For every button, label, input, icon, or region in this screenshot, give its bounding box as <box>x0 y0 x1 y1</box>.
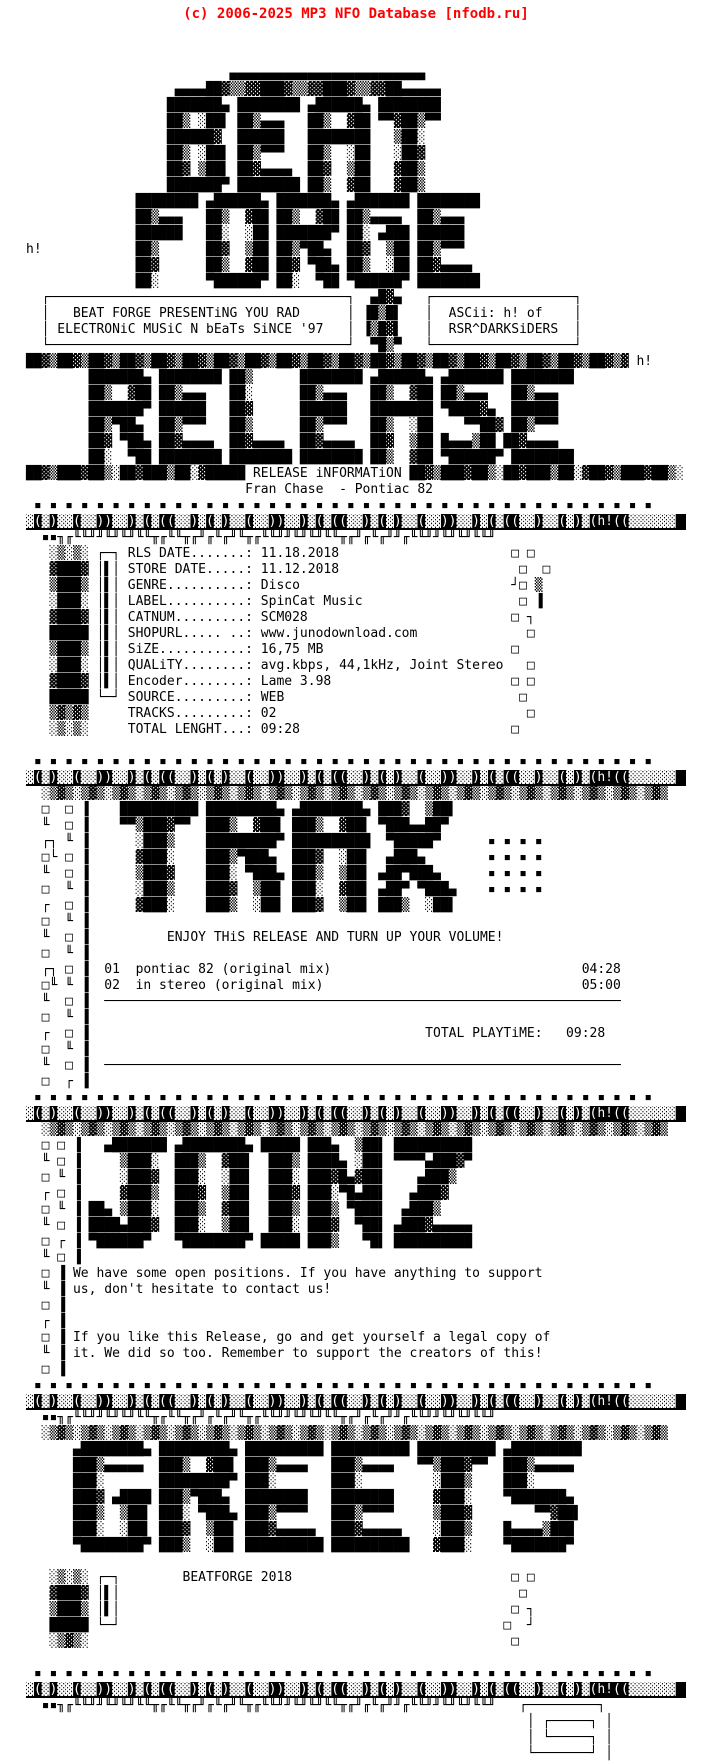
nfo-line: ███████▀ ██████ ██▓ ██████ ████████ ▀███… <box>26 402 686 418</box>
nfo-line: ███████▀ ████████ ██▒ ▓██ ▓██▒ <box>26 178 686 194</box>
nfo-line: └───────┘ │ <box>26 1746 686 1762</box>
nfo-line: □ ╙ ▐ <box>26 914 686 930</box>
nfo-line: ▪▪╖╓╙╙╜╜╙╜╙╜╙╙╥╓╙╙╥╓╜╓╙╓╜╙╥╓╙╙╜╜╙╜╙╜╙╙╥╓… <box>26 1698 686 1714</box>
nfo-line: □ □ ▐ ▄███████ ▄████████▄ █████ ███▄ ▒██… <box>26 1138 686 1154</box>
nfo-line: ▒███▒ │▌│ GENRE..........: Disco ┘□ ▒ <box>26 578 686 594</box>
nfo-line: ███████▄ ████████ ██▒ ████████ ▄██████▄ … <box>26 370 686 386</box>
nfo-line: ╙ □ ▐ ▒███▓ ███░ ▀███▄ ███▒ ▒██▌ ▄██▀███… <box>26 866 686 882</box>
nfo-line: □ ╙ ▐ <box>26 1010 686 1026</box>
nfo-line: ░▒░▒░ ┌─┐ BEATFORGE 2018 □ □ <box>26 1570 686 1586</box>
nfo-line: ╙ □ ▐ ▒███░ ███▒ ▓██▌ ███▒ ████▄ ░██▌ ▀▀… <box>26 1154 686 1170</box>
nfo-line: ╙ ▐ it. We did so too. Remember to suppo… <box>26 1346 686 1362</box>
nfo-line: □ ╙ ▐ <box>26 1042 686 1058</box>
nfo-line: ▪ ▪ ▪ ▪ ▪ ▪ ▪ ▪ ▪ ▪ ▪ ▪ ▪ ▪ ▪ ▪ ▪ ▪ ▪ ▪ … <box>26 1378 686 1394</box>
nfo-line: ▄▄▄▄▄▄▄▄▄▄▄▄▄▄▄▄▄▄▄▄▄▄▄▄▄ <box>26 66 686 82</box>
nfodb-copyright-header: (c) 2006-2025 MP3 NFO Database [nfodb.ru… <box>0 5 712 23</box>
nfo-line: □ ▐ We have some open positions. If you … <box>26 1266 686 1282</box>
nfo-line: ▒███▒ │▌│ □ ┐ <box>26 1602 686 1618</box>
nfo-line: ▓███▓ │▌│ STORE DATE.....: 11.12.2018 □ … <box>26 562 686 578</box>
nfo-line: ███▓ ▄████ ███▒▀███▄ ████████ ████████ ▓… <box>26 1490 686 1506</box>
nfo-line: ╙ □ ▐ ──────────────────────────────────… <box>26 994 686 1010</box>
nfo-line: ▪ ▪ ▪ ▪ ▪ ▪ ▪ ▪ ▪ ▪ ▪ ▪ ▪ ▪ ▪ ▪ ▪ ▪ ▪ ▪ … <box>26 1666 686 1682</box>
nfo-line: ┌┐ ╙ ▐ ░███▒ █████████▀ ██████████ ▀████… <box>26 834 686 850</box>
nfo-line: ██▒ ░██▌ ██▒▄▄▄ ██▒ ▓██ ▀▀▓██▒▀▀ <box>26 114 686 130</box>
nfo-line: ██▓▒███▓██▒░██▓███▒██░▓█████ RELEASE iNF… <box>26 466 686 482</box>
nfo-line: □ ╙ ▐ ░███▓ ███░ ░██▌ ███░ ███▓█▄▓██▌ ▄█… <box>26 1170 686 1186</box>
nfo-line: □ □ ▐ ██████████ █████████▄ ▄████████▄ █… <box>26 802 686 818</box>
nfo-line: ╙ □ ▐ ──────────────────────────────────… <box>26 1058 686 1074</box>
nfo-line: □ ╙ ▐ ██▄ ▒███░ ███▒ ▓██▌ ███▒ ███▒ ▀███… <box>26 1202 686 1218</box>
nfo-line <box>26 1650 686 1666</box>
nfo-line: ▄████████▄ █████████▄ ██████████ ███████… <box>26 1442 686 1458</box>
nfo-line: ┌ ▐ <box>26 1314 686 1330</box>
nfo-line: │ └─────┐ │ <box>26 1730 686 1746</box>
nfo-line <box>26 1554 686 1570</box>
nfo-line: │ BEAT FORGE PRESENTiNG YOU RAD │ ▐█▒█▌ … <box>26 306 686 322</box>
nfo-line <box>26 50 686 66</box>
nfo-line: ┌ □ ▐ ▓███▒ ███▓ ▒██▌ ███▓ ███░▀█▄██▌ ▄█… <box>26 1186 686 1202</box>
nfo-line: ▒▓▒▓▒ TRACKS.........: 02 □ <box>26 706 686 722</box>
nfo-line: □ ▐ If you like this Release, go and get… <box>26 1330 686 1346</box>
nfo-line: ╙ ▐ us, don't hesitate to contact us! <box>26 1282 686 1298</box>
nfo-line: ╙ □ ▐ ▀▀▒███▓▀▀ ███▒ ▓██▌ ███▒ ▓██▌ ▀███… <box>26 818 686 834</box>
nfo-line: ░███░ │▌│ LABEL..........: SpinCat Music… <box>26 594 686 610</box>
nfo-line: ██▓ ▒██▌ ██▓▄▄▄▄ ██▓ ▒██ ▓██▒ <box>26 162 686 178</box>
nfo-line: ▄▄▄▄██▓▒▒▓▓███▓▒▒▓▓███▓▒▒▓▓██▄▄▄▄▄ <box>26 82 686 98</box>
nfo-border-line: ▓(▓)▓▓(▓▓))▓▓)▓(▓((▓▓)▓(▓)▓▓(▓▓))▓▓)▓(▓(… <box>26 770 686 786</box>
nfo-line: ██▓▒██▓▒██▓▒██▓▒██▓▒██▓▒██▓▒██▓▒██▓▒██▓▒… <box>26 354 686 370</box>
nfo-line: ░███░ │▌│ QUALiTY........: avg.kbps, 44,… <box>26 658 686 674</box>
nfo-line: ┌ □ ▐ TOTAL PLAYTiME: 09:28 <box>26 1026 686 1042</box>
nfo-line: ┌──────────────────────────────────────┐… <box>26 290 686 306</box>
nfo-border-line: ▓(▓)▓▓(▓▓))▓▓)▓(▓((▓▓)▓(▓)▓▓(▓▓))▓▓)▓(▓(… <box>26 1106 686 1122</box>
nfo-art: ▄▄▄▄▄▄▄▄▄▄▄▄▄▄▄▄▄▄▄▄▄▄▄▄▄ ▄▄▄▄██▓▒▒▓▓███… <box>26 50 686 1762</box>
nfo-line: ████████ ▄██████▄ ███████▄ ▄███████ ████… <box>26 194 686 210</box>
nfo-line: ██▓ ▀██▄ ██▓▄▄▄▄ ██▓▄▄▄▄ ██▓▄▄▄▄ ██▓ ▒██… <box>26 434 686 450</box>
nfo-line: □ ▐ <box>26 1362 686 1378</box>
nfo-line: ░▒░▒░ TOTAL LENGHT...: 09:28 □ <box>26 722 686 738</box>
nfo-line: ███▒ ▒██▌ ███░ ▀███▄ ███▒▀▀▀▀ ███▒▀▀▀▀ ▒… <box>26 1506 686 1522</box>
nfo-line: ▓███▓ │▌│ Encoder........: Lame 3.98 □ □ <box>26 674 686 690</box>
nfo-line: ██▒▄▄▄ ██▒ ▓██ ██▒ ▓██ ██▒▄▄▄▄ ██▒▄▄▄ <box>26 210 686 226</box>
nfo-line: ██████ ██░ ░██ ███████▀ ██░ ▄███ ██████ <box>26 226 686 242</box>
nfo-line: □ ╙ ▐ <box>26 946 686 962</box>
nfo-border-line: ▓(▓)▓▓(▓▓))▓▓)▓(▓((▓▓)▓(▓)▓▓(▓▓))▓▓)▓(▓(… <box>26 1682 686 1698</box>
nfo-viewer-page: (c) 2006-2025 MP3 NFO Database [nfodb.ru… <box>0 0 712 1764</box>
nfo-line: ░▒▓▒░▒▓▒░▒▓▒░▒▓▒░▒▓▒░▒▓▒░▒▓▒░▒▓▒░▒▓▒░▒▓▒… <box>26 1426 686 1442</box>
nfo-line: █████ └─┘ SOURCE.........: WEB □ <box>26 690 686 706</box>
nfo-line: ███▒▄▄▄▄▄ ███▒ ▓██▌ ███▒▄▄▄▄ ███▒▄▄▄▄ ▀▀… <box>26 1458 686 1474</box>
nfo-line: □╙ ╙ ▐ 02 in stereo (original mix) 05:00 <box>26 978 686 994</box>
nfo-line: │ ELECTRONiC MUSiC N bEaTs SiNCE '97 │ ▐… <box>26 322 686 338</box>
nfo-line: ▪ ▪ ▪ ▪ ▪ ▪ ▪ ▪ ▪ ▪ ▪ ▪ ▪ ▪ ▪ ▪ ▪ ▪ ▪ ▪ … <box>26 1090 686 1106</box>
nfo-line: ███░ █████████▀ ███░ ███░ ░███▒ ███░ <box>26 1474 686 1490</box>
nfo-line: ░▒▓▒░▒▓▒░▒▓▒░▒▓▒░▒▓▒░▒▓▒░▒▓▒░▒▓▒░▒▓▒░▒▓▒… <box>26 786 686 802</box>
nfo-line: █████ │▌│ SHOPURL..... ..: www.junodownl… <box>26 626 686 642</box>
nfo-line: └──────────────────────────────────────┘… <box>26 338 686 354</box>
nfo-line: ░▒░▒░ ┌─┐ RLS DATE.......: 11.18.2018 □ … <box>26 546 686 562</box>
nfo-line: Fran Chase - Pontiac 82 <box>26 482 686 498</box>
nfo-line: █████ └─┘ □ ┘ <box>26 1618 686 1634</box>
nfo-line: ▪ ▪ ▪ ▪ ▪ ▪ ▪ ▪ ▪ ▪ ▪ ▪ ▪ ▪ ▪ ▪ ▪ ▪ ▪ ▪ … <box>26 498 686 514</box>
nfo-border-line: ▓(▓)▓▓(▓▓))▓▓)▓(▓((▓▓)▓(▓)▓▓(▓▓))▓▓)▓(▓(… <box>26 514 686 530</box>
nfo-line: □ ╙ ▐ ░███▒ ███▓ ▒██▌ ███░ ▓██▌ ▄██▀ ▀██… <box>26 882 686 898</box>
nfo-line: ██▒ ░██▌ ██▒▀▀▀ ██▒ ░██ ░██▓ <box>26 146 686 162</box>
nfo-line: ███░ ░██▌ ███▓ ▒██▌ ███▓▄▄▄▄▄ ███▓▄▄▄▄▄ … <box>26 1522 686 1538</box>
nfo-line: ██▒ ▓██ ██▒▄▄▄ ██░ ██▒▄▄▄ ██▒ ▓██ ██▒▄▄▄… <box>26 386 686 402</box>
nfo-line: □ ▐ <box>26 1298 686 1314</box>
nfo-line: ┌┐ □ ▐ 01 pontiac 82 (original mix) 04:2… <box>26 962 686 978</box>
nfo-line: ▀████████▀ ███▒ ░██▌ ██████████ ████████… <box>26 1538 686 1554</box>
nfo-line: ░▒▓▒░ □ <box>26 1634 686 1650</box>
nfo-line: ╙ □ ▐ <box>26 1250 686 1266</box>
nfo-line: ▒███▒ │▌│ SiZE...........: 16,75 MB □ <box>26 642 686 658</box>
nfo-line: ╙ □ ▐ ████▄███▓ ███░ ▒██▌ ███░ ███▓ ▀██▌… <box>26 1218 686 1234</box>
nfo-line: ██░ ▀██ ████████ ████████ ████████ ██▒ ▓… <box>26 450 686 466</box>
nfo-line: ▓███▓ │▌│ □ <box>26 1586 686 1602</box>
nfo-line: ██░ ▀██████▀ ██░ ▀██ ▀██████▀ ████████ <box>26 274 686 290</box>
nfo-line: ██▓ ██▒ ▓██ ██▓ ▀██▄ ██▒ ░██ ██▓▄▄▄▄ <box>26 258 686 274</box>
nfo-line: ░▒▓▒░▒▓▒░▒▓▒░▒▓▒░▒▓▒░▒▓▒░▒▓▒░▒▓▒░▒▓▒░▒▓▒… <box>26 1122 686 1138</box>
nfo-line: ███████▄ ████████ ▄██████▄ ████████ <box>26 98 686 114</box>
nfo-line: ▪▪╖╓╙╙╜╜╙╜╙╜╙╙╥╓╙╙╥╓╜╓╙╓╜╙╥╓╙╙╜╜╙╜╙╜╙╙╥╓… <box>26 530 686 546</box>
nfo-line: h! ██▒ ██▓ ▒██ ██▒▀██▄ ██▓ ▒██ ██▒▀▀▀ <box>26 242 686 258</box>
nfo-line: ┌ □ ▐ ▓███░ ███▒ ░██▌ ███▓ ▒██▌ ███▒ ░██… <box>26 898 686 914</box>
nfo-line: ▓███▓ │▌│ CATNUM.........: SCM028 □ ┐ <box>26 610 686 626</box>
nfo-line: ▪▪╖╓╙╙╜╜╙╜╙╜╙╙╥╓╙╙╥╓╜╓╙╓╜╙╥╓╙╙╜╜╙╜╙╜╙╙╥╓… <box>26 1410 686 1426</box>
nfo-line: ▪ ▪ ▪ ▪ ▪ ▪ ▪ ▪ ▪ ▪ ▪ ▪ ▪ ▪ ▪ ▪ ▪ ▪ ▪ ▪ … <box>26 754 686 770</box>
nfo-line: │ ┌─────┐ │ <box>26 1714 686 1730</box>
nfo-line: ╙ □ ▐ ENJOY THiS RELEASE AND TURN UP YOU… <box>26 930 686 946</box>
nfo-line: ██████▓ ██████ ████████ ▒██░ <box>26 130 686 146</box>
nfo-line: □ ┌ ▐ <box>26 1074 686 1090</box>
nfo-line: ██▒▀██▄ ██▒▀▀▀ ██▒ ██▒▀▀▀ ██▒ ░██ ▀▀██▓ … <box>26 418 686 434</box>
nfo-line: □└ □ ▐ ▓███░ ███▒▀███▄ ███▓ ░██▌ ▄███▄ ▪… <box>26 850 686 866</box>
nfo-line: □ ┌ ▐ ▀██████▀ ▀████████▀ █████ ███▒ ▀█▌… <box>26 1234 686 1250</box>
nfo-border-line: ▓(▓)▓▓(▓▓))▓▓)▓(▓((▓▓)▓(▓)▓▓(▓▓))▓▓)▓(▓(… <box>26 1394 686 1410</box>
nfo-line <box>26 738 686 754</box>
